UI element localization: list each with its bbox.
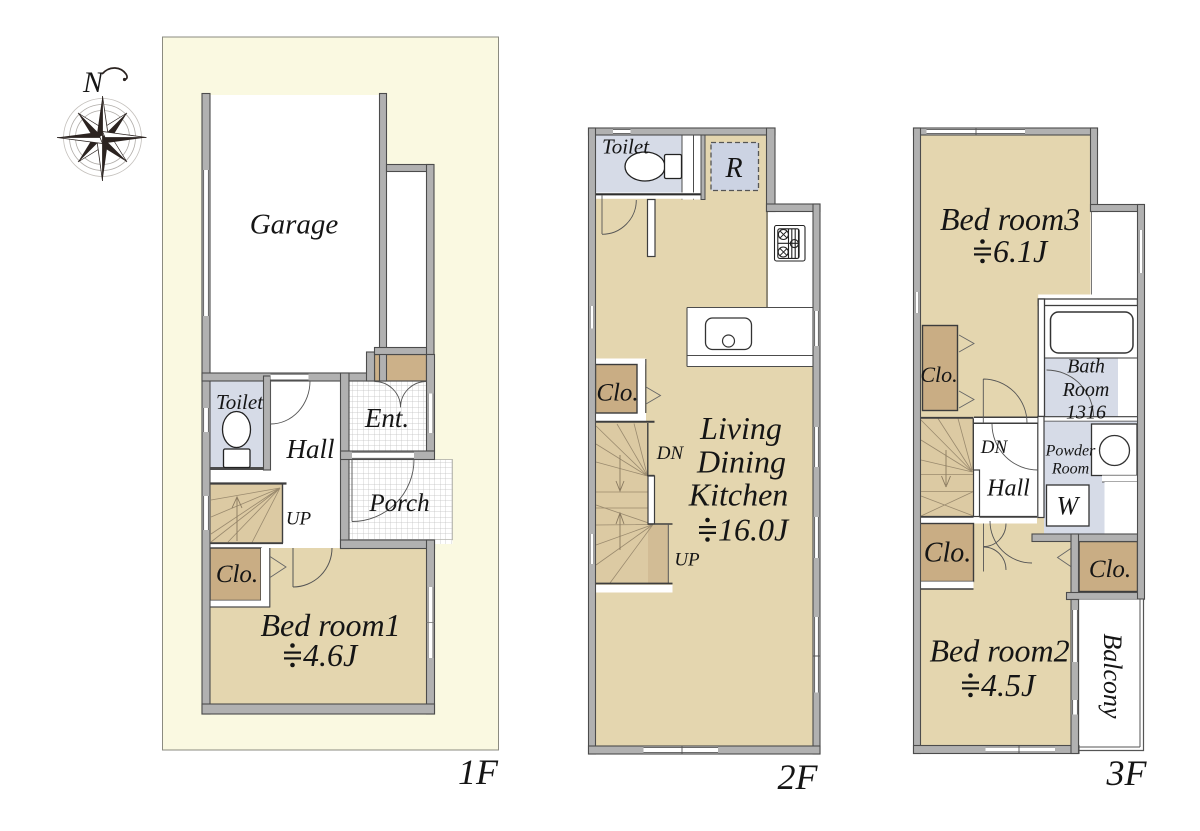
svg-text:Bed room3: Bed room3 bbox=[940, 201, 1080, 237]
svg-text:DN: DN bbox=[656, 443, 685, 464]
svg-text:Toilet: Toilet bbox=[602, 135, 650, 159]
svg-text:Dining: Dining bbox=[696, 444, 786, 480]
svg-text:Clo.: Clo. bbox=[216, 561, 258, 588]
svg-text:Porch: Porch bbox=[368, 490, 429, 517]
svg-text:6.1J: 6.1J bbox=[993, 233, 1049, 269]
svg-text:1F: 1F bbox=[458, 752, 499, 792]
svg-text:Bed room2: Bed room2 bbox=[929, 633, 1069, 669]
svg-text:3F: 3F bbox=[1106, 753, 1148, 793]
svg-text:Toilet: Toilet bbox=[216, 390, 264, 414]
svg-text:Clo.: Clo. bbox=[924, 538, 971, 569]
svg-text:Kitchen: Kitchen bbox=[688, 477, 789, 513]
svg-text:UP: UP bbox=[674, 550, 700, 571]
svg-text:Room: Room bbox=[1062, 379, 1110, 401]
svg-text:W: W bbox=[1057, 492, 1081, 521]
svg-text:2F: 2F bbox=[778, 757, 819, 797]
svg-text:Powder: Powder bbox=[1045, 443, 1097, 460]
svg-text:Hall: Hall bbox=[285, 434, 334, 464]
svg-text:Garage: Garage bbox=[250, 209, 339, 241]
svg-text:4.6J: 4.6J bbox=[303, 637, 359, 673]
svg-text:Room: Room bbox=[1051, 461, 1089, 478]
svg-text:Ent.: Ent. bbox=[364, 403, 409, 433]
svg-text:Hall: Hall bbox=[986, 476, 1030, 502]
svg-text:UP: UP bbox=[286, 509, 312, 530]
svg-text:4.5J: 4.5J bbox=[981, 667, 1037, 703]
svg-text:1316: 1316 bbox=[1066, 402, 1106, 424]
svg-text:Living: Living bbox=[699, 410, 782, 446]
svg-text:DN: DN bbox=[980, 437, 1009, 458]
svg-text:R: R bbox=[724, 153, 742, 184]
svg-text:Clo.: Clo. bbox=[1089, 556, 1131, 583]
svg-text:Clo.: Clo. bbox=[596, 380, 638, 407]
svg-text:N: N bbox=[82, 66, 105, 99]
svg-text:16.0J: 16.0J bbox=[718, 512, 790, 548]
svg-text:Balcony: Balcony bbox=[1098, 633, 1127, 719]
svg-text:Bath: Bath bbox=[1067, 356, 1105, 378]
svg-text:Clo.: Clo. bbox=[920, 362, 957, 387]
